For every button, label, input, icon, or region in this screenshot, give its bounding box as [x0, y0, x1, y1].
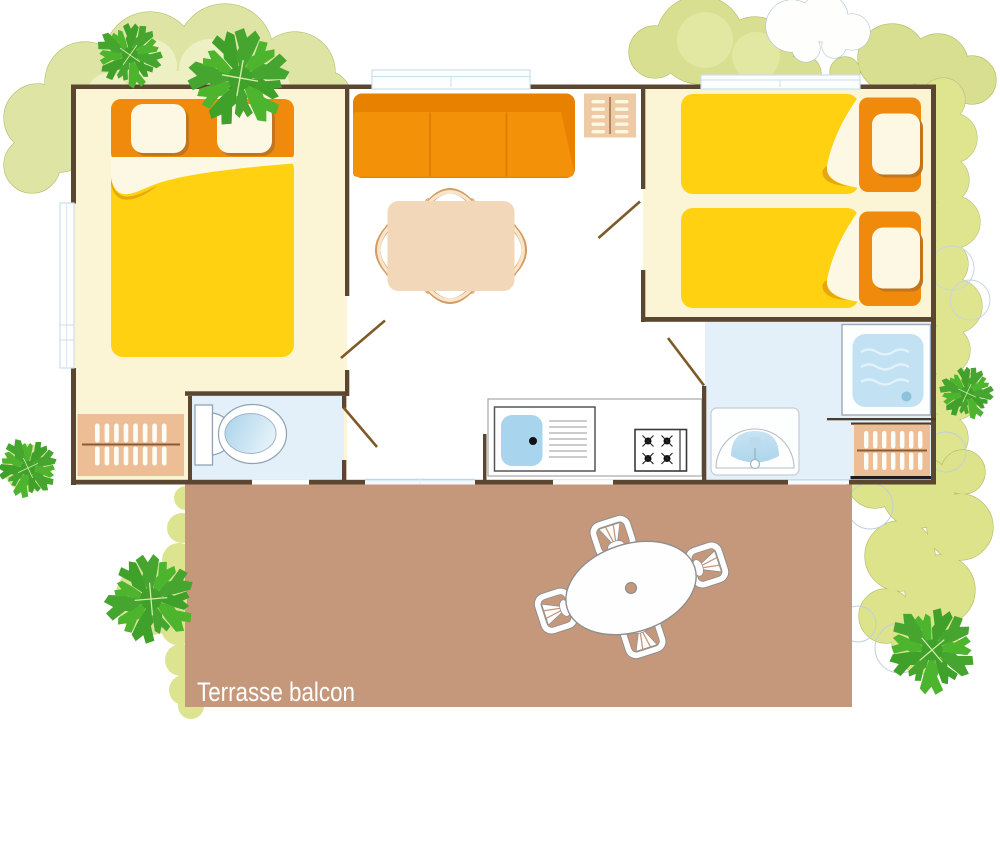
- svg-text:Terrasse balcon: Terrasse balcon: [197, 677, 355, 707]
